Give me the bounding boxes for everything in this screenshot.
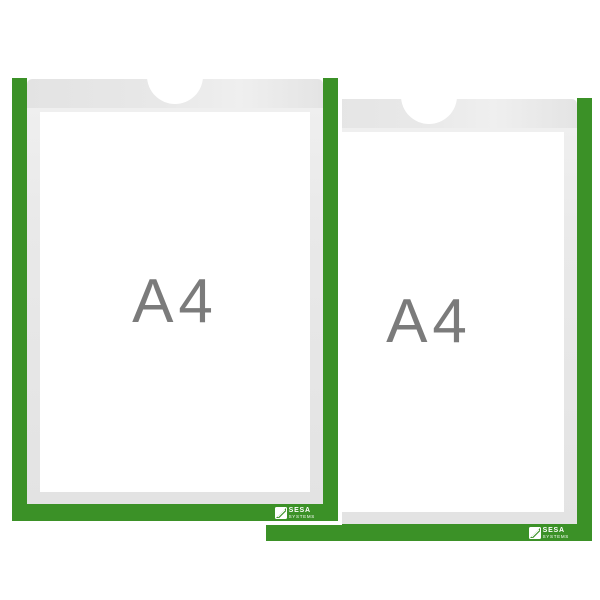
a4-sheet: A4 — [40, 112, 310, 492]
product-image: A4 SESA SYSTEMS A4 — [0, 0, 600, 600]
hanger-band — [27, 79, 323, 108]
sesa-logo-icon — [529, 527, 541, 539]
brand-subname: SYSTEMS — [289, 515, 315, 520]
a4-size-label: A4 — [386, 291, 472, 353]
brand-subname: SYSTEMS — [543, 535, 569, 540]
sesa-logo-icon — [275, 507, 287, 519]
frame-right-bar — [577, 98, 592, 541]
thumb-notch — [147, 48, 203, 104]
pocket-inner-margin: A4 — [27, 108, 323, 504]
thumb-notch — [401, 68, 457, 124]
frame-left-bar — [12, 78, 27, 521]
brand-name: SESA — [543, 527, 569, 534]
a4-size-label: A4 — [132, 271, 218, 333]
sesa-logo: SESA SYSTEMS — [275, 506, 315, 520]
sesa-logo: SESA SYSTEMS — [529, 526, 569, 540]
document-pocket-front: A4 SESA SYSTEMS — [12, 78, 338, 521]
sesa-logo-text: SESA SYSTEMS — [289, 507, 315, 520]
frame-right-bar — [323, 78, 338, 521]
brand-name: SESA — [289, 507, 315, 514]
sesa-logo-text: SESA SYSTEMS — [543, 527, 569, 540]
